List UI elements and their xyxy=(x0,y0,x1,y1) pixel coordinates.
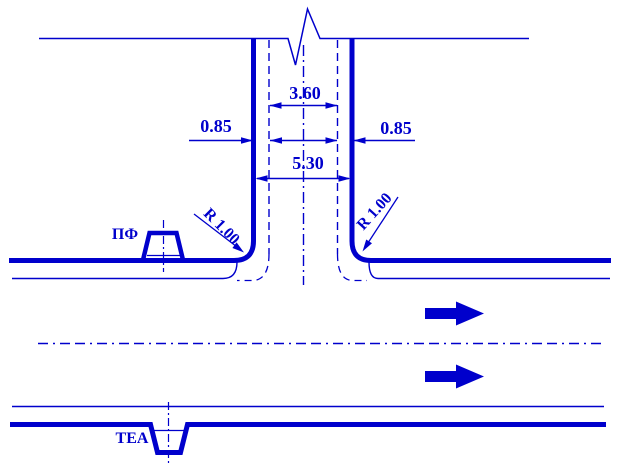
direction-arrow-lower xyxy=(425,365,484,389)
dim-0-85-lines xyxy=(189,137,415,144)
right-road-edge xyxy=(352,38,611,261)
pf-label: ПФ xyxy=(105,227,145,243)
upper-inner-edge-right xyxy=(369,262,610,279)
direction-arrow-upper xyxy=(425,302,484,326)
dim-label-3-60: 3.60 xyxy=(280,84,330,102)
dim-label-0-85-right: 0.85 xyxy=(371,119,421,137)
upper-inner-edge-left xyxy=(12,262,237,279)
drawing-linework xyxy=(0,0,624,468)
dim-label-5-30: 5.30 xyxy=(283,154,333,172)
lower-road-edge-with-tea-notch xyxy=(10,425,606,453)
dim-label-0-85-left: 0.85 xyxy=(191,117,241,135)
junction-drawing: 3.60 0.85 0.85 5.30 R 1.00 R 1.00 ПФ ТЕА xyxy=(0,0,624,468)
tea-label: ТЕА xyxy=(110,431,154,447)
top-edge-line-with-break xyxy=(39,9,529,65)
